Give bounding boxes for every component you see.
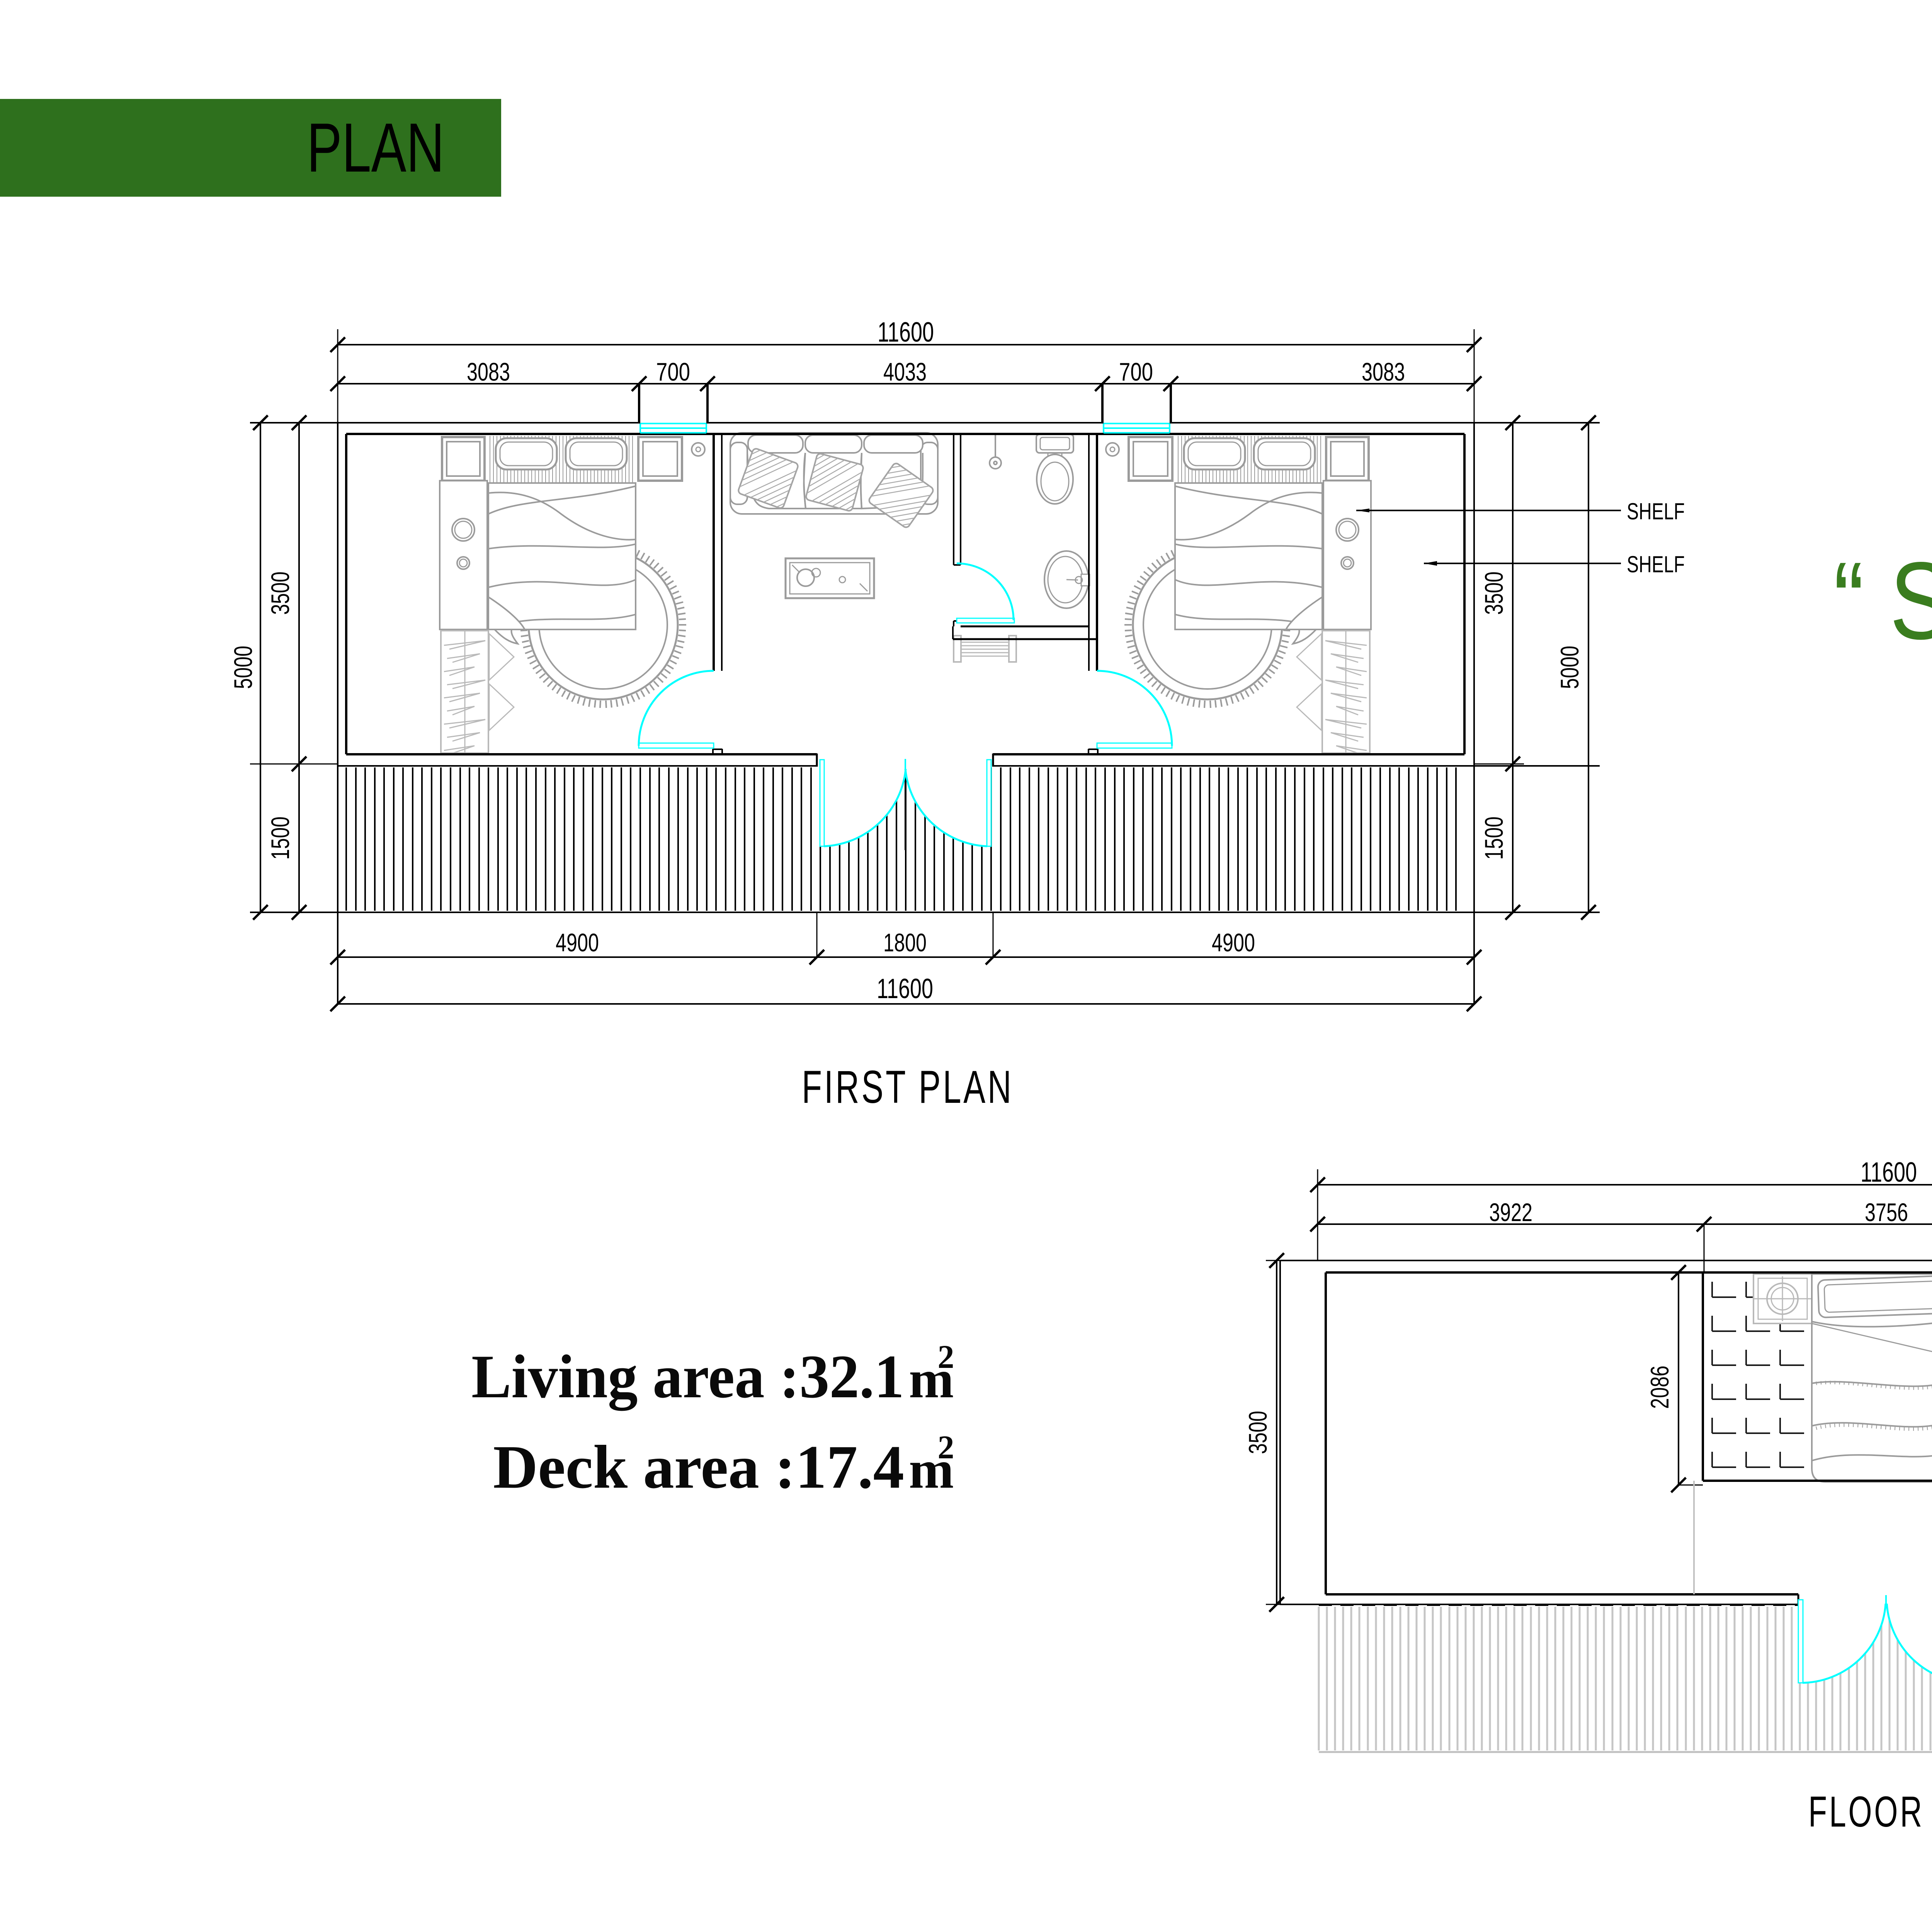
svg-text:3083: 3083 <box>467 357 510 386</box>
svg-text:4033: 4033 <box>883 357 927 386</box>
svg-text:1500: 1500 <box>1480 816 1508 860</box>
svg-text:700: 700 <box>656 357 690 386</box>
svg-text:2086: 2086 <box>1645 1366 1674 1409</box>
svg-text:SHELF: SHELF <box>1627 551 1685 577</box>
svg-text:Deck area :17.4: Deck area :17.4 <box>493 1432 904 1501</box>
svg-text:3922: 3922 <box>1489 1198 1532 1226</box>
svg-text:“ SANDWICH ”: “ SANDWICH ” <box>1833 539 1932 662</box>
svg-text:2: 2 <box>938 1338 954 1375</box>
svg-text:PLAN: PLAN <box>307 109 444 187</box>
svg-text:11600: 11600 <box>878 317 934 348</box>
svg-text:3756: 3756 <box>1865 1198 1908 1226</box>
svg-text:11600: 11600 <box>1861 1157 1917 1188</box>
svg-text:1800: 1800 <box>883 928 927 957</box>
svg-text:4900: 4900 <box>1212 928 1255 957</box>
svg-text:4900: 4900 <box>556 928 599 957</box>
svg-text:FIRST PLAN: FIRST PLAN <box>802 1061 1014 1113</box>
svg-text:5000: 5000 <box>229 646 257 689</box>
svg-text:3500: 3500 <box>1243 1411 1272 1454</box>
svg-text:SHELF: SHELF <box>1627 498 1685 524</box>
svg-text:11600: 11600 <box>877 973 933 1004</box>
svg-text:3500: 3500 <box>266 572 294 615</box>
svg-text:3500: 3500 <box>1480 572 1508 615</box>
svg-text:700: 700 <box>1119 357 1153 386</box>
svg-text:FLOOR PLAN: FLOOR PLAN <box>1808 1788 1932 1836</box>
svg-text:1500: 1500 <box>266 816 294 860</box>
svg-text:2: 2 <box>938 1429 954 1466</box>
svg-text:Living area :32.1: Living area :32.1 <box>471 1342 904 1411</box>
svg-text:5000: 5000 <box>1555 646 1584 689</box>
svg-text:3083: 3083 <box>1362 357 1405 386</box>
